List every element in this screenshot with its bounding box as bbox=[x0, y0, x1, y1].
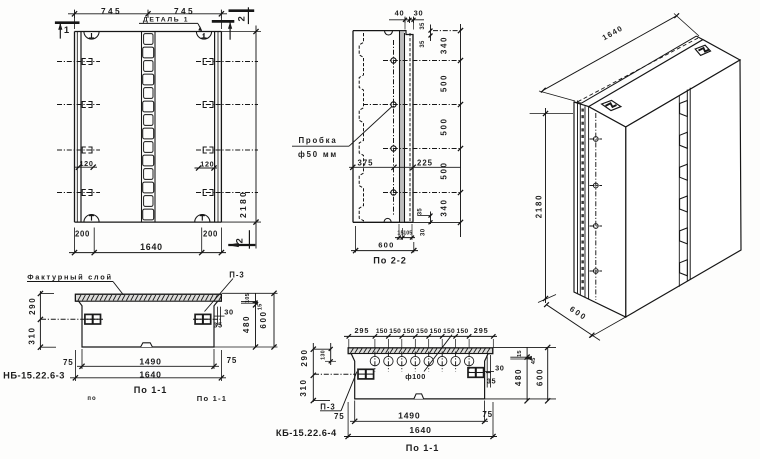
svg-text:ф100: ф100 bbox=[405, 372, 426, 381]
svg-text:35: 35 bbox=[213, 321, 222, 330]
svg-text:150: 150 bbox=[389, 328, 401, 335]
svg-text:30: 30 bbox=[495, 364, 504, 373]
svg-text:по: по bbox=[87, 396, 96, 402]
svg-text:П-3: П-3 bbox=[229, 270, 245, 279]
svg-text:500: 500 bbox=[440, 161, 449, 179]
svg-text:120: 120 bbox=[79, 159, 93, 168]
svg-text:ф50 мм: ф50 мм bbox=[298, 150, 338, 159]
svg-text:225: 225 bbox=[417, 159, 433, 168]
svg-text:По 1-1: По 1-1 bbox=[134, 385, 167, 395]
svg-text:15: 15 bbox=[517, 350, 523, 357]
svg-text:КБ-15.22.6-4: КБ-15.22.6-4 bbox=[276, 428, 337, 438]
svg-text:Фактурный слой: Фактурный слой bbox=[27, 273, 112, 282]
svg-text:35: 35 bbox=[420, 40, 426, 48]
svg-text:45: 45 bbox=[531, 357, 537, 364]
svg-text:75: 75 bbox=[334, 412, 345, 421]
svg-text:310: 310 bbox=[299, 378, 308, 396]
svg-text:НБ-15.22.6-3: НБ-15.22.6-3 bbox=[3, 371, 65, 381]
svg-text:35: 35 bbox=[420, 22, 426, 30]
svg-text:500: 500 bbox=[440, 74, 449, 92]
svg-text:По 1-1: По 1-1 bbox=[197, 394, 227, 403]
svg-text:1490: 1490 bbox=[398, 410, 420, 420]
svg-text:600: 600 bbox=[259, 310, 268, 328]
svg-text:310: 310 bbox=[28, 326, 37, 344]
svg-text:2: 2 bbox=[237, 16, 248, 21]
svg-text:745: 745 bbox=[174, 6, 195, 16]
svg-text:1640: 1640 bbox=[140, 242, 163, 252]
svg-text:150: 150 bbox=[443, 328, 455, 335]
svg-text:340: 340 bbox=[440, 36, 449, 54]
svg-text:745: 745 bbox=[101, 6, 122, 16]
svg-text:30: 30 bbox=[420, 228, 426, 236]
svg-text:120: 120 bbox=[200, 159, 214, 168]
svg-text:75: 75 bbox=[63, 358, 74, 367]
svg-text:1: 1 bbox=[64, 25, 70, 36]
svg-text:200: 200 bbox=[75, 229, 90, 238]
svg-text:600: 600 bbox=[535, 368, 544, 386]
svg-text:40: 40 bbox=[395, 9, 405, 18]
svg-text:105: 105 bbox=[403, 230, 412, 236]
svg-text:2180: 2180 bbox=[535, 194, 544, 219]
svg-text:150: 150 bbox=[376, 328, 388, 335]
svg-text:480: 480 bbox=[242, 315, 251, 333]
svg-text:30: 30 bbox=[224, 308, 233, 317]
svg-text:По 1-1: По 1-1 bbox=[406, 443, 439, 453]
svg-text:П-3: П-3 bbox=[320, 402, 336, 411]
svg-text:2: 2 bbox=[235, 238, 246, 243]
svg-text:150: 150 bbox=[430, 328, 442, 335]
svg-text:Пробка: Пробка bbox=[299, 136, 338, 145]
svg-text:35: 35 bbox=[418, 208, 424, 216]
svg-text:295: 295 bbox=[474, 326, 489, 335]
svg-text:75: 75 bbox=[482, 410, 493, 419]
svg-text:По 2-2: По 2-2 bbox=[373, 256, 406, 266]
svg-text:35: 35 bbox=[487, 377, 496, 386]
svg-text:75: 75 bbox=[227, 356, 238, 365]
svg-text:375: 375 bbox=[357, 159, 373, 168]
svg-text:150: 150 bbox=[416, 328, 428, 335]
svg-text:105: 105 bbox=[245, 293, 251, 303]
svg-text:1640: 1640 bbox=[139, 369, 161, 379]
svg-text:2180: 2180 bbox=[238, 190, 248, 218]
svg-text:150: 150 bbox=[457, 328, 469, 335]
svg-text:ДЕТАЛЬ 1: ДЕТАЛЬ 1 bbox=[143, 17, 189, 24]
svg-text:1640: 1640 bbox=[409, 425, 431, 435]
svg-text:600: 600 bbox=[378, 241, 394, 250]
svg-text:30: 30 bbox=[414, 9, 424, 18]
svg-text:130: 130 bbox=[321, 350, 327, 360]
svg-text:150: 150 bbox=[403, 328, 415, 335]
svg-text:200: 200 bbox=[203, 229, 218, 238]
svg-text:290: 290 bbox=[28, 297, 37, 315]
svg-text:15: 15 bbox=[258, 303, 264, 310]
svg-text:480: 480 bbox=[514, 368, 523, 386]
svg-text:295: 295 bbox=[354, 326, 369, 335]
svg-text:290: 290 bbox=[300, 348, 309, 366]
svg-text:1490: 1490 bbox=[139, 357, 161, 367]
svg-text:340: 340 bbox=[440, 198, 449, 216]
svg-text:500: 500 bbox=[440, 117, 449, 135]
